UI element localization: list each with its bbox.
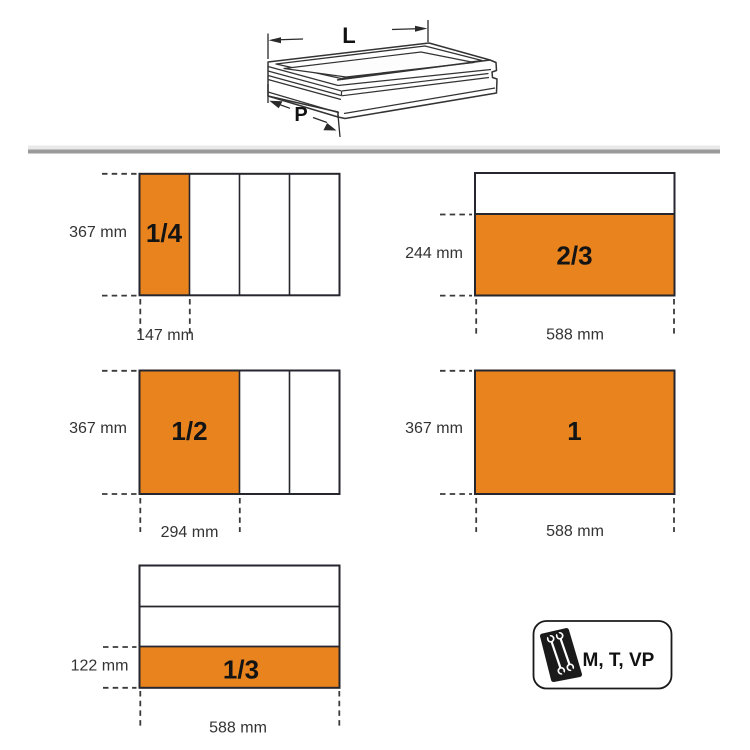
svg-text:1/4: 1/4 — [146, 218, 183, 248]
svg-text:588 mm: 588 mm — [209, 720, 267, 737]
svg-text:M, T, VP: M, T, VP — [583, 650, 655, 671]
svg-text:1: 1 — [567, 416, 581, 446]
svg-text:122 mm: 122 mm — [71, 658, 129, 675]
svg-text:367 mm: 367 mm — [405, 420, 463, 437]
svg-text:294 mm: 294 mm — [161, 524, 219, 541]
svg-text:P: P — [294, 104, 307, 126]
svg-text:L: L — [342, 23, 355, 48]
svg-text:367 mm: 367 mm — [69, 224, 127, 241]
svg-text:588 mm: 588 mm — [546, 327, 604, 344]
svg-text:1/3: 1/3 — [223, 655, 259, 685]
svg-text:588 mm: 588 mm — [546, 523, 604, 540]
svg-text:147 mm: 147 mm — [136, 327, 194, 344]
svg-text:244 mm: 244 mm — [405, 245, 463, 262]
svg-text:2/3: 2/3 — [556, 241, 592, 271]
svg-text:1/2: 1/2 — [171, 416, 207, 446]
svg-text:367 mm: 367 mm — [69, 420, 127, 437]
